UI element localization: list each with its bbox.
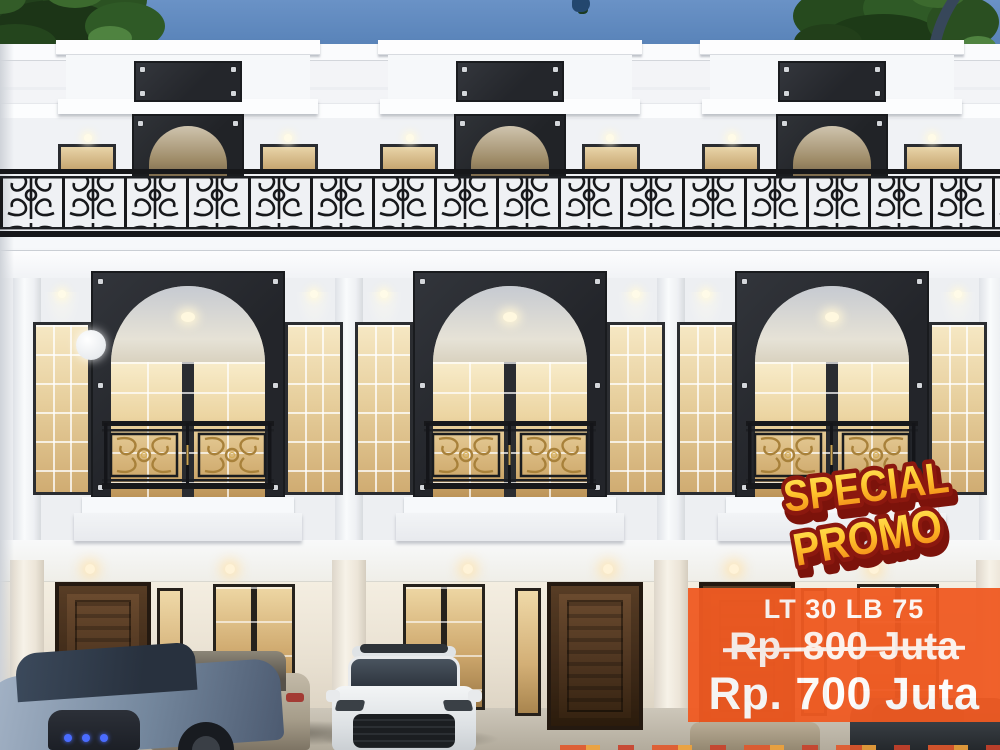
attic-accent-panel (134, 61, 242, 102)
pediment-cap (700, 40, 964, 55)
juliet-balcony-railing (424, 419, 596, 492)
arch-lunette (111, 286, 265, 362)
window-sill-slab (404, 497, 616, 514)
pediment-cap (378, 40, 642, 55)
downlight (728, 134, 736, 142)
globe-wall-lamp (76, 330, 106, 360)
downlight (84, 134, 92, 142)
property-promo-flyer: SPECIAL SPECIAL PROMO PROMO LT 30 LB 75 … (0, 0, 1000, 750)
carport-downlight (603, 564, 613, 574)
downlight (632, 290, 640, 298)
carport-downlight (729, 564, 739, 574)
downlight (928, 134, 936, 142)
new-price: Rp. 700 Juta (708, 669, 979, 719)
ceiling-light (181, 312, 195, 322)
attic-accent-panel (456, 61, 564, 102)
car-white-hatchback (326, 640, 482, 750)
carport-downlight (85, 564, 95, 574)
door-sidelight (515, 588, 541, 716)
carport-downlight (463, 564, 473, 574)
wrought-iron-railing (0, 169, 1000, 237)
townhouse-unit (349, 0, 671, 750)
window-sill-slab-lower (396, 513, 624, 541)
scooter-cover (48, 710, 140, 750)
price-panel: LT 30 LB 75 Rp. 800 Juta Rp. 700 Juta (688, 588, 1000, 722)
window-sill-slab-lower (74, 513, 302, 541)
second-floor-window-right (285, 322, 343, 495)
ceiling-light (825, 312, 839, 322)
special-promo-sticker: SPECIAL SPECIAL PROMO PROMO (765, 442, 970, 581)
land-building-spec: LT 30 LB 75 (764, 593, 925, 625)
downlight (702, 290, 710, 298)
attic-accent-panel (778, 61, 886, 102)
entry-door (547, 582, 643, 730)
downlight (954, 290, 962, 298)
window-sill-slab (82, 497, 294, 514)
pediment-cap (56, 40, 320, 55)
second-floor-window-left (677, 322, 735, 495)
downlight (606, 134, 614, 142)
carport-downlight (225, 564, 235, 574)
cropped-bottom-text (560, 745, 1000, 750)
facade-edge-shadow (0, 44, 14, 708)
downlight (380, 290, 388, 298)
old-price-strikethrough: Rp. 800 Juta (729, 625, 959, 669)
second-floor-window-left (355, 322, 413, 495)
arch-lunette (755, 286, 909, 362)
downlight (406, 134, 414, 142)
ceiling-light (503, 312, 517, 322)
downlight (310, 290, 318, 298)
juliet-balcony-railing (102, 419, 274, 492)
downlight (58, 290, 66, 298)
arch-lunette (433, 286, 587, 362)
car-blue-sedan (0, 638, 282, 750)
second-floor-window-right (607, 322, 665, 495)
downlight (284, 134, 292, 142)
pilaster-ground (654, 560, 688, 708)
